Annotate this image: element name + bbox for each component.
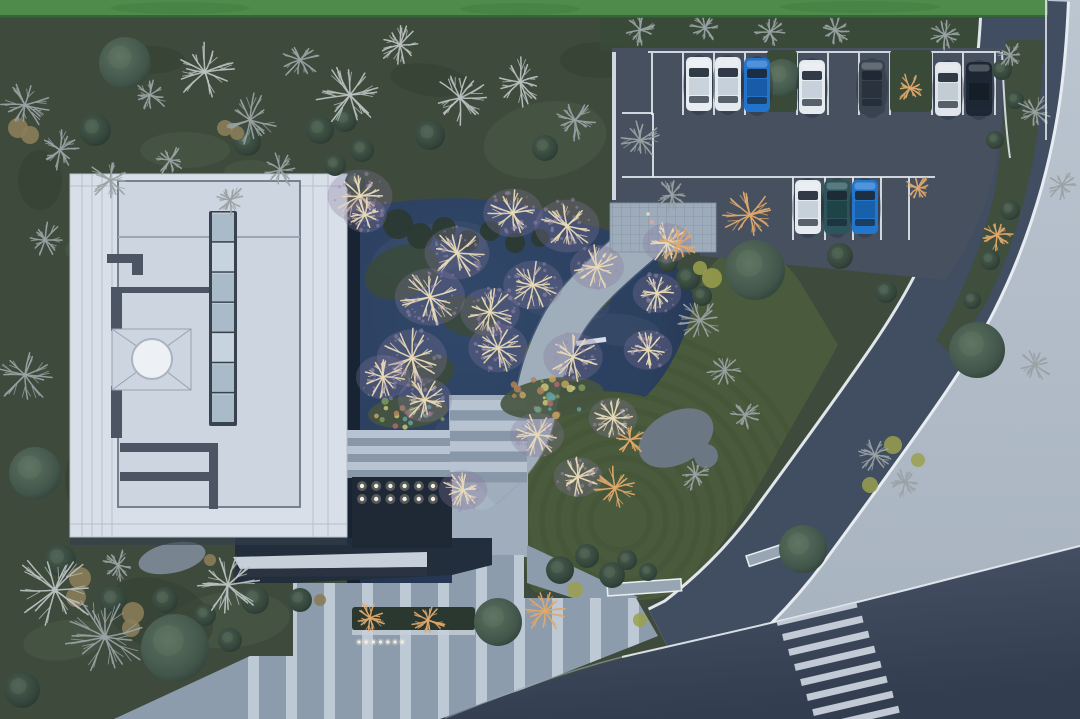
skylight-panes <box>212 213 234 422</box>
planter-light <box>372 640 375 643</box>
evergreen-tree <box>532 135 558 161</box>
evergreen-tree <box>546 556 574 584</box>
skylight-pane <box>212 213 234 241</box>
parking-curb-wall <box>612 52 616 200</box>
skylight-pane <box>212 303 234 331</box>
canopy-light <box>374 497 378 501</box>
yellow-bush <box>633 613 647 627</box>
planter-light <box>357 640 360 643</box>
illuminated-tree <box>483 189 542 237</box>
lawn-gravel-pad-lobe <box>694 444 718 468</box>
car-teal-sedan <box>821 178 853 238</box>
planter-light <box>393 640 396 643</box>
car-blue-sedan <box>741 56 773 116</box>
bridge-step <box>347 430 450 438</box>
skylight-pane <box>212 273 234 301</box>
illuminated-tree <box>343 197 386 232</box>
aerial-photo-canvas <box>0 0 1080 719</box>
evergreen-tree <box>963 291 981 309</box>
bridge-step <box>347 462 450 470</box>
roof-dome-skylight <box>132 339 172 379</box>
evergreen-tree <box>306 116 334 144</box>
canopy-light <box>360 484 364 488</box>
canopy-light <box>388 484 392 488</box>
evergreen-tree <box>617 550 637 570</box>
evergreen-tree <box>827 243 853 269</box>
canopy-light <box>431 497 435 501</box>
evergreen-tree <box>779 525 827 573</box>
plaza-figure <box>650 220 654 224</box>
ochre-bush <box>204 554 216 566</box>
car-white-sedan <box>792 178 824 238</box>
canopy-light <box>374 484 378 488</box>
evergreen-tree <box>350 138 374 162</box>
illuminated-tree <box>395 268 465 325</box>
yellow-bush <box>911 453 925 467</box>
evergreen-tree <box>79 114 111 146</box>
canopy-light <box>417 497 421 501</box>
evergreen-tree <box>1006 91 1024 109</box>
yellow-bush <box>693 261 707 275</box>
turf-strip-edge <box>0 15 1048 18</box>
evergreen-tree <box>99 37 151 89</box>
canopy-light <box>417 484 421 488</box>
parking-hedge <box>600 17 1040 51</box>
plaza-figure <box>646 212 650 216</box>
evergreen-tree <box>141 614 209 682</box>
planter-light <box>365 640 368 643</box>
ground-patch <box>140 132 230 168</box>
evergreen-tree <box>1000 200 1020 220</box>
evergreen-tree <box>575 544 599 568</box>
evergreen-tree <box>949 322 1005 378</box>
skylight-pane <box>212 243 234 271</box>
bridge-step <box>347 438 450 446</box>
yellow-bush <box>884 436 902 454</box>
evergreen-tree <box>324 154 346 176</box>
car-black-suv <box>963 60 995 120</box>
evergreen-tree <box>9 447 61 499</box>
evergreen-tree <box>288 588 312 612</box>
evergreen-tree <box>241 586 269 614</box>
evergreen-tree <box>333 108 357 132</box>
planter-light <box>386 640 389 643</box>
evergreen-tree <box>875 281 897 303</box>
walkway-step <box>450 452 527 462</box>
canopy-light <box>431 484 435 488</box>
illuminated-tree <box>554 457 603 497</box>
car-blue-sedan <box>849 178 881 238</box>
car-white-sedan <box>932 60 964 120</box>
building-shadow <box>70 537 347 545</box>
parking-island <box>890 50 932 112</box>
car-gray-sedan <box>856 58 888 118</box>
evergreen-tree <box>152 587 178 613</box>
car-white-sedan <box>712 55 744 115</box>
skylight-pane <box>212 394 234 422</box>
skylight-pane <box>212 334 234 362</box>
evergreen-tree <box>639 563 657 581</box>
ground-patch <box>18 150 62 210</box>
ochre-bush <box>69 567 91 589</box>
bridge-step <box>347 454 450 462</box>
evergreen-tree <box>725 240 785 300</box>
canopy-light <box>388 497 392 501</box>
planter-light <box>379 640 382 643</box>
illuminated-tree <box>398 378 452 422</box>
evergreen-tree <box>218 628 242 652</box>
car-white-sedan <box>796 58 828 118</box>
canopy-light <box>402 497 406 501</box>
evergreen-tree <box>980 250 1000 270</box>
entrance-bridge-steps <box>347 430 450 478</box>
bridge-step <box>347 446 450 454</box>
yellow-bush <box>862 477 878 493</box>
illuminated-tree <box>510 413 564 457</box>
aerial-site-photo <box>0 0 1080 719</box>
planter-curb <box>352 630 475 635</box>
canopy-light <box>402 484 406 488</box>
evergreen-tree <box>474 598 522 646</box>
evergreen-tree <box>4 672 40 708</box>
illuminated-tree <box>624 330 673 370</box>
ochre-bush <box>314 594 326 606</box>
pavilion-building <box>70 174 347 545</box>
evergreen-tree <box>986 131 1004 149</box>
evergreen-tree <box>194 604 216 626</box>
skylight-pane <box>212 364 234 392</box>
evergreen-tree <box>415 120 445 150</box>
bridge-step <box>347 470 450 478</box>
car-white-sedan <box>683 55 715 115</box>
ochre-bush <box>21 126 39 144</box>
planter-light <box>401 640 404 643</box>
yellow-bush <box>567 582 583 598</box>
illuminated-tree <box>468 324 527 372</box>
canopy-light <box>360 497 364 501</box>
